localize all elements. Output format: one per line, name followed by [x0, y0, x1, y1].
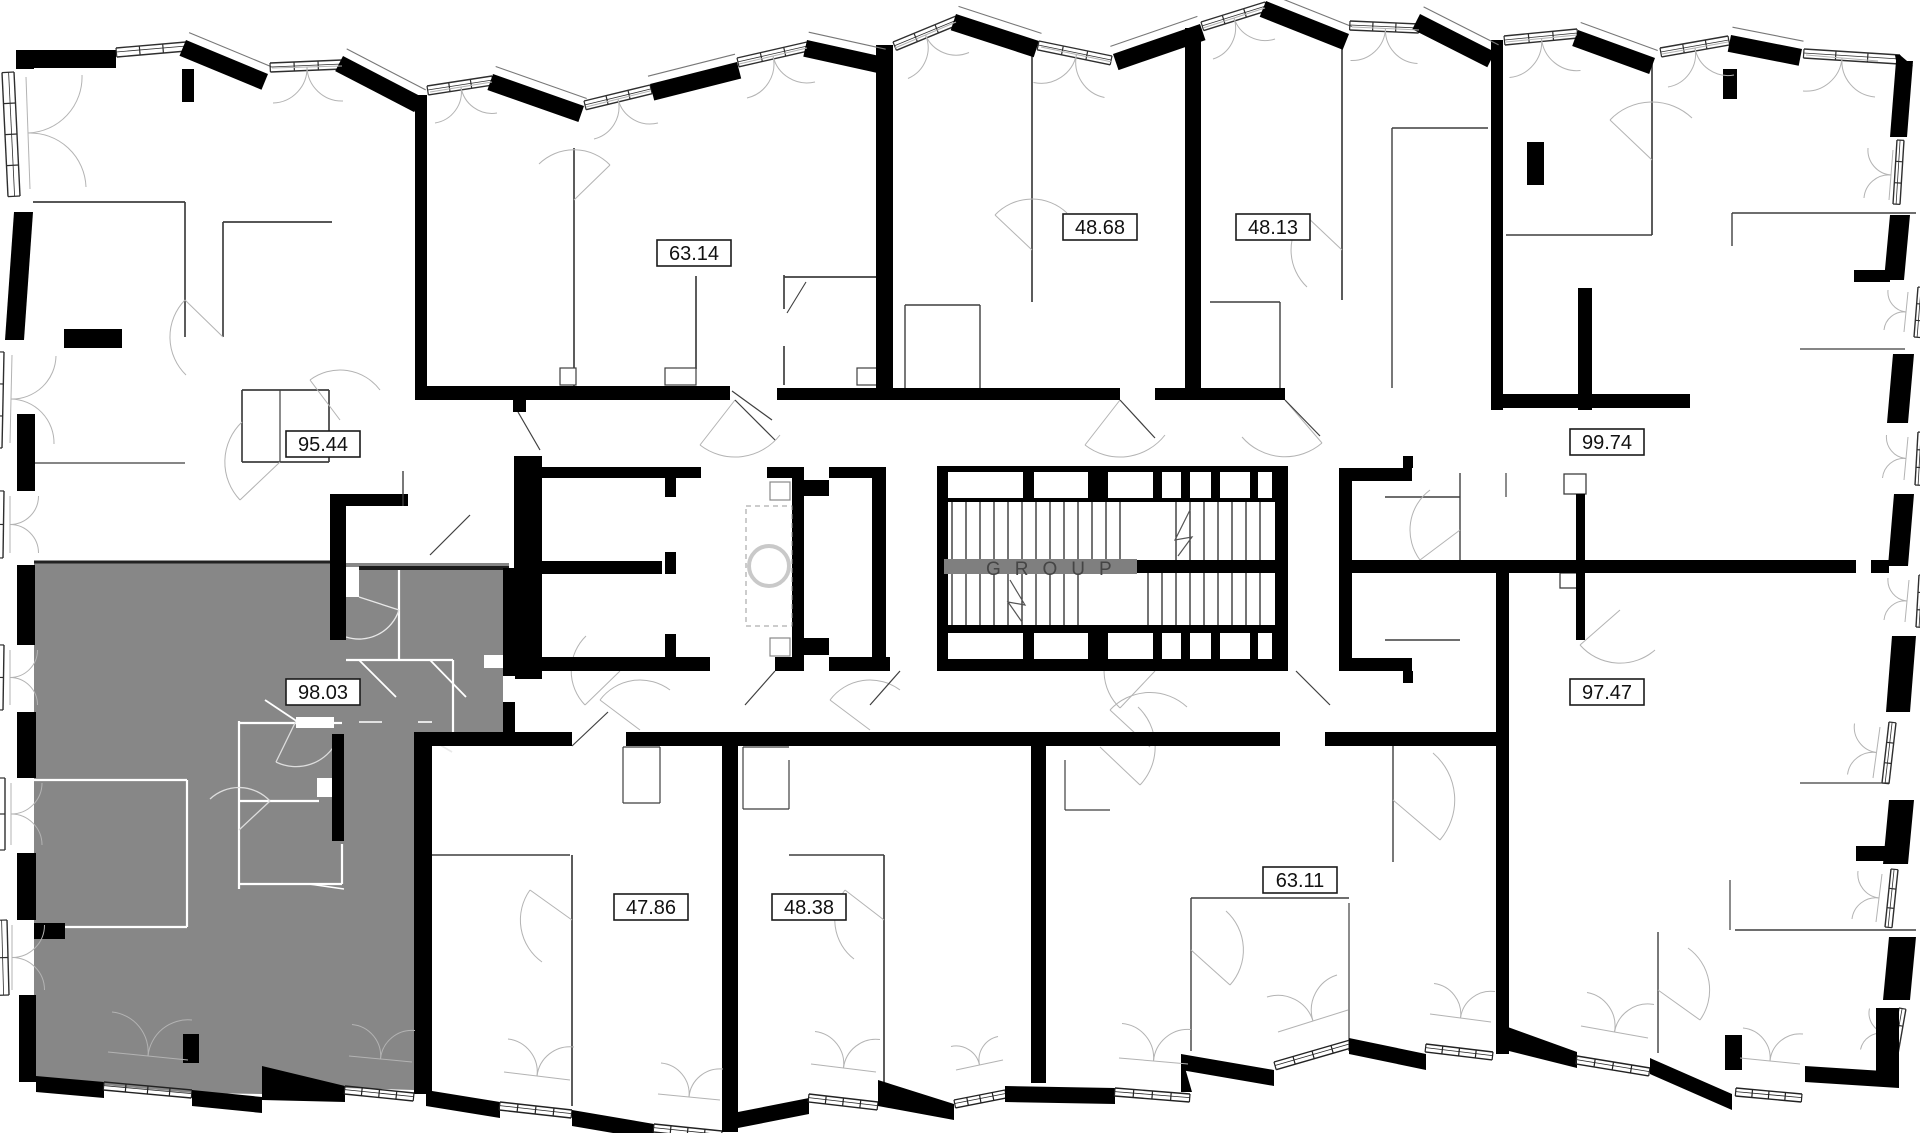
svg-text:95.44: 95.44 — [298, 434, 348, 456]
svg-text:99.74: 99.74 — [1582, 432, 1632, 454]
svg-text:48.68: 48.68 — [1075, 217, 1125, 239]
svg-text:98.03: 98.03 — [298, 682, 348, 704]
svg-text:97.47: 97.47 — [1582, 682, 1632, 704]
svg-text:63.14: 63.14 — [669, 243, 719, 265]
svg-text:48.38: 48.38 — [784, 897, 834, 919]
svg-text:48.13: 48.13 — [1248, 217, 1298, 239]
svg-text:47.86: 47.86 — [626, 897, 676, 919]
svg-text:63.11: 63.11 — [1276, 870, 1325, 892]
svg-text:GROUP: GROUP — [986, 559, 1126, 580]
